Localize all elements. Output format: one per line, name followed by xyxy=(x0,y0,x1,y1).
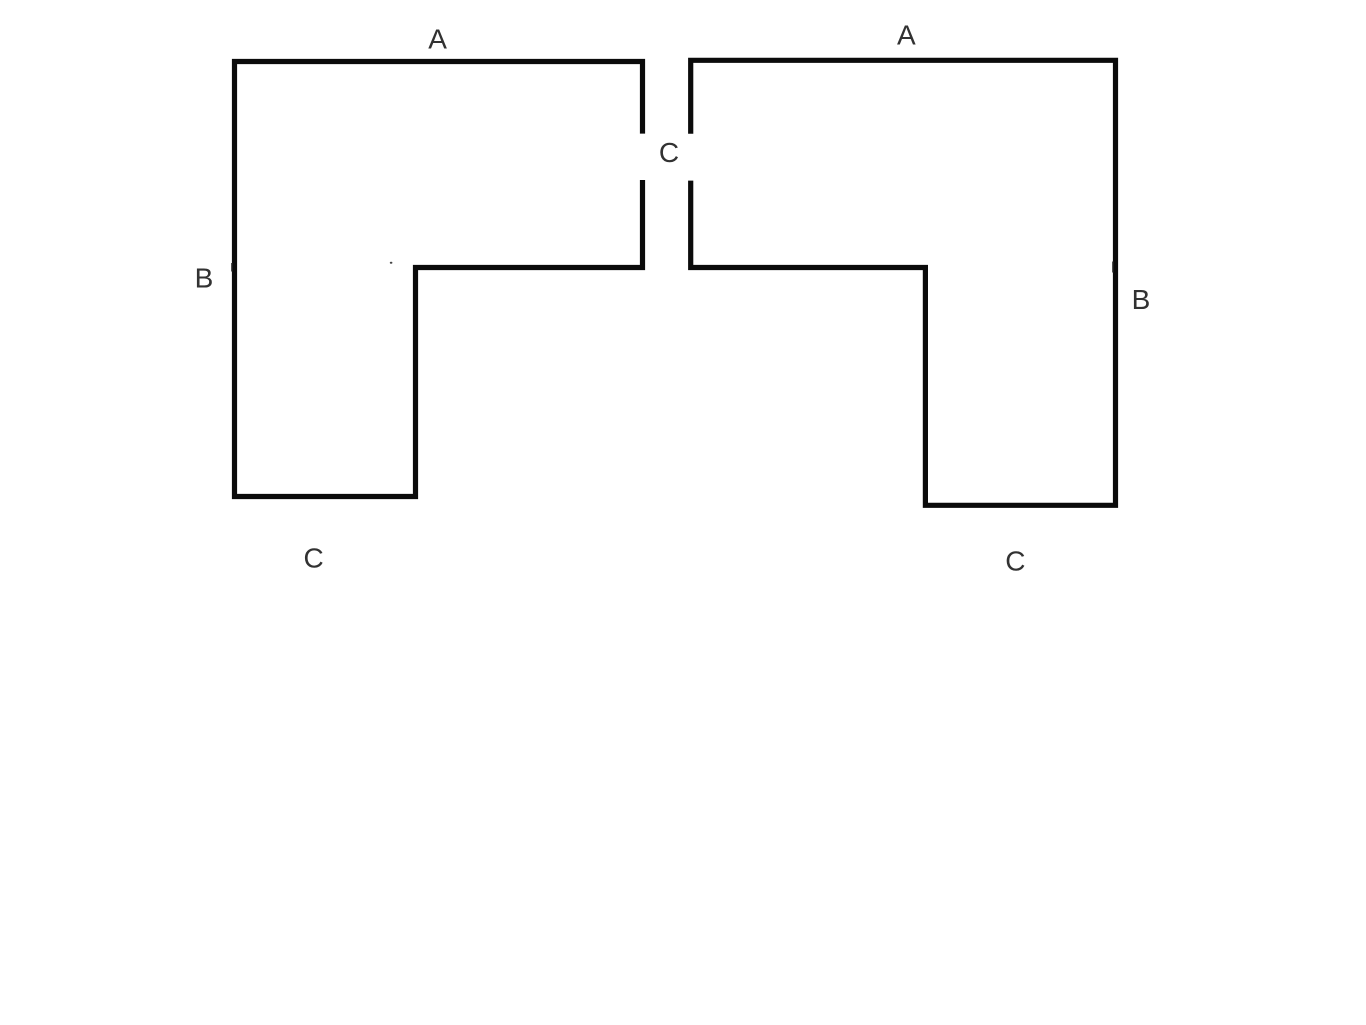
svg-text:C: C xyxy=(659,137,679,168)
svg-text:B: B xyxy=(1132,284,1151,315)
svg-text:B: B xyxy=(195,263,214,294)
svg-text:C: C xyxy=(303,543,323,574)
svg-text:C: C xyxy=(1005,546,1025,577)
svg-text:A: A xyxy=(897,20,916,51)
svg-text:A: A xyxy=(428,24,447,55)
